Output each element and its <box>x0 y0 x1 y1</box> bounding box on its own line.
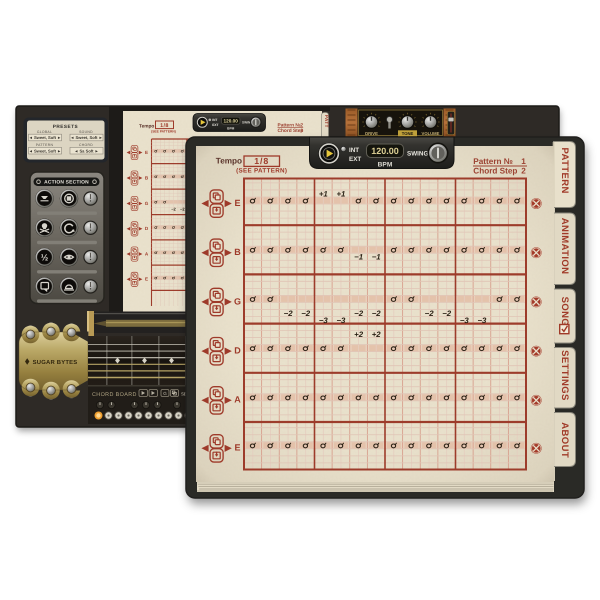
svg-text:−2: −2 <box>180 207 185 212</box>
svg-text:+2: +2 <box>354 330 364 339</box>
svg-text:G: G <box>234 296 241 306</box>
svg-text:SONG: SONG <box>559 297 570 327</box>
svg-text:◄ Sa Soft ►: ◄ Sa Soft ► <box>74 148 98 153</box>
svg-text:EXT: EXT <box>349 156 361 163</box>
svg-text:Tempo: Tempo <box>216 157 242 166</box>
svg-text:TONE: TONE <box>402 131 414 136</box>
svg-text:(SEE PATTERN): (SEE PATTERN) <box>151 129 176 133</box>
svg-text:−2: −2 <box>442 309 452 318</box>
svg-text:1: 1 <box>521 157 526 166</box>
svg-text:−3: −3 <box>319 316 329 325</box>
svg-text:Chord Step: Chord Step <box>473 166 517 175</box>
svg-text:VOLUME: VOLUME <box>422 131 440 136</box>
svg-text:−1: −1 <box>372 253 381 262</box>
svg-text:−3: −3 <box>477 316 487 325</box>
svg-text:−2: −2 <box>301 309 311 318</box>
svg-text:E: E <box>234 443 240 453</box>
svg-text:−2: −2 <box>372 309 382 318</box>
svg-text:+2: +2 <box>372 330 382 339</box>
svg-text:PATT: PATT <box>323 115 329 128</box>
svg-text:120.00: 120.00 <box>224 119 239 124</box>
svg-text:−2: −2 <box>354 309 364 318</box>
svg-text:CHORD: CHORD <box>79 143 93 147</box>
svg-text:−3: −3 <box>460 316 470 325</box>
svg-text:SUGAR BYTES: SUGAR BYTES <box>33 359 78 366</box>
svg-text:◄ Sweet, Soft ►: ◄ Sweet, Soft ► <box>29 148 61 153</box>
svg-text:PATTERN: PATTERN <box>36 143 54 147</box>
svg-text:−3: −3 <box>336 316 346 325</box>
svg-text:Pattern №: Pattern № <box>473 157 513 166</box>
svg-text:Tempo: Tempo <box>139 123 154 129</box>
svg-text:SETTINGS: SETTINGS <box>559 350 570 401</box>
svg-text:D: D <box>234 346 241 356</box>
svg-text:ANIMATION: ANIMATION <box>559 218 570 275</box>
svg-text:(SEE PATTERN): (SEE PATTERN) <box>236 168 287 175</box>
svg-text:−1: −1 <box>354 253 363 262</box>
svg-text:ACTION SECTION: ACTION SECTION <box>44 180 89 186</box>
svg-text:1/8: 1/8 <box>160 123 169 129</box>
svg-text:EXT: EXT <box>212 123 218 127</box>
svg-text:E: E <box>145 277 148 282</box>
svg-text:BPM: BPM <box>378 162 393 169</box>
svg-text:CHORD BOARD: CHORD BOARD <box>92 392 137 398</box>
svg-text:120.00: 120.00 <box>371 146 399 156</box>
svg-text:1/8: 1/8 <box>254 156 269 166</box>
svg-text:A: A <box>234 395 241 405</box>
svg-text:BPM: BPM <box>227 126 234 130</box>
svg-text:E: E <box>145 150 148 155</box>
svg-text:−2: −2 <box>171 207 176 212</box>
svg-text:◄ Sweet, Soft ►: ◄ Sweet, Soft ► <box>29 135 61 140</box>
svg-text:SWING: SWING <box>407 151 428 158</box>
svg-text:G: G <box>163 391 167 396</box>
svg-text:PRESETS: PRESETS <box>53 124 78 129</box>
svg-text:B: B <box>234 247 241 257</box>
svg-text:GLOBAL: GLOBAL <box>37 130 52 134</box>
svg-text:ABOUT: ABOUT <box>559 422 570 458</box>
svg-text:INT: INT <box>212 118 217 122</box>
svg-text:2: 2 <box>300 128 303 134</box>
svg-text:INT: INT <box>349 147 359 154</box>
svg-text:+1: +1 <box>336 189 345 198</box>
svg-text:G: G <box>145 201 149 206</box>
svg-text:SOUND: SOUND <box>79 130 93 134</box>
svg-text:E: E <box>234 198 240 208</box>
svg-text:◄ Sweet, Soft ►: ◄ Sweet, Soft ► <box>70 135 102 140</box>
svg-text:2: 2 <box>521 166 526 175</box>
svg-text:½: ½ <box>41 253 49 263</box>
svg-text:+1: +1 <box>319 189 328 198</box>
svg-text:−2: −2 <box>284 309 294 318</box>
svg-text:−2: −2 <box>425 309 435 318</box>
svg-text:PATTERN: PATTERN <box>559 148 570 194</box>
svg-text:DRIVE: DRIVE <box>365 131 378 136</box>
